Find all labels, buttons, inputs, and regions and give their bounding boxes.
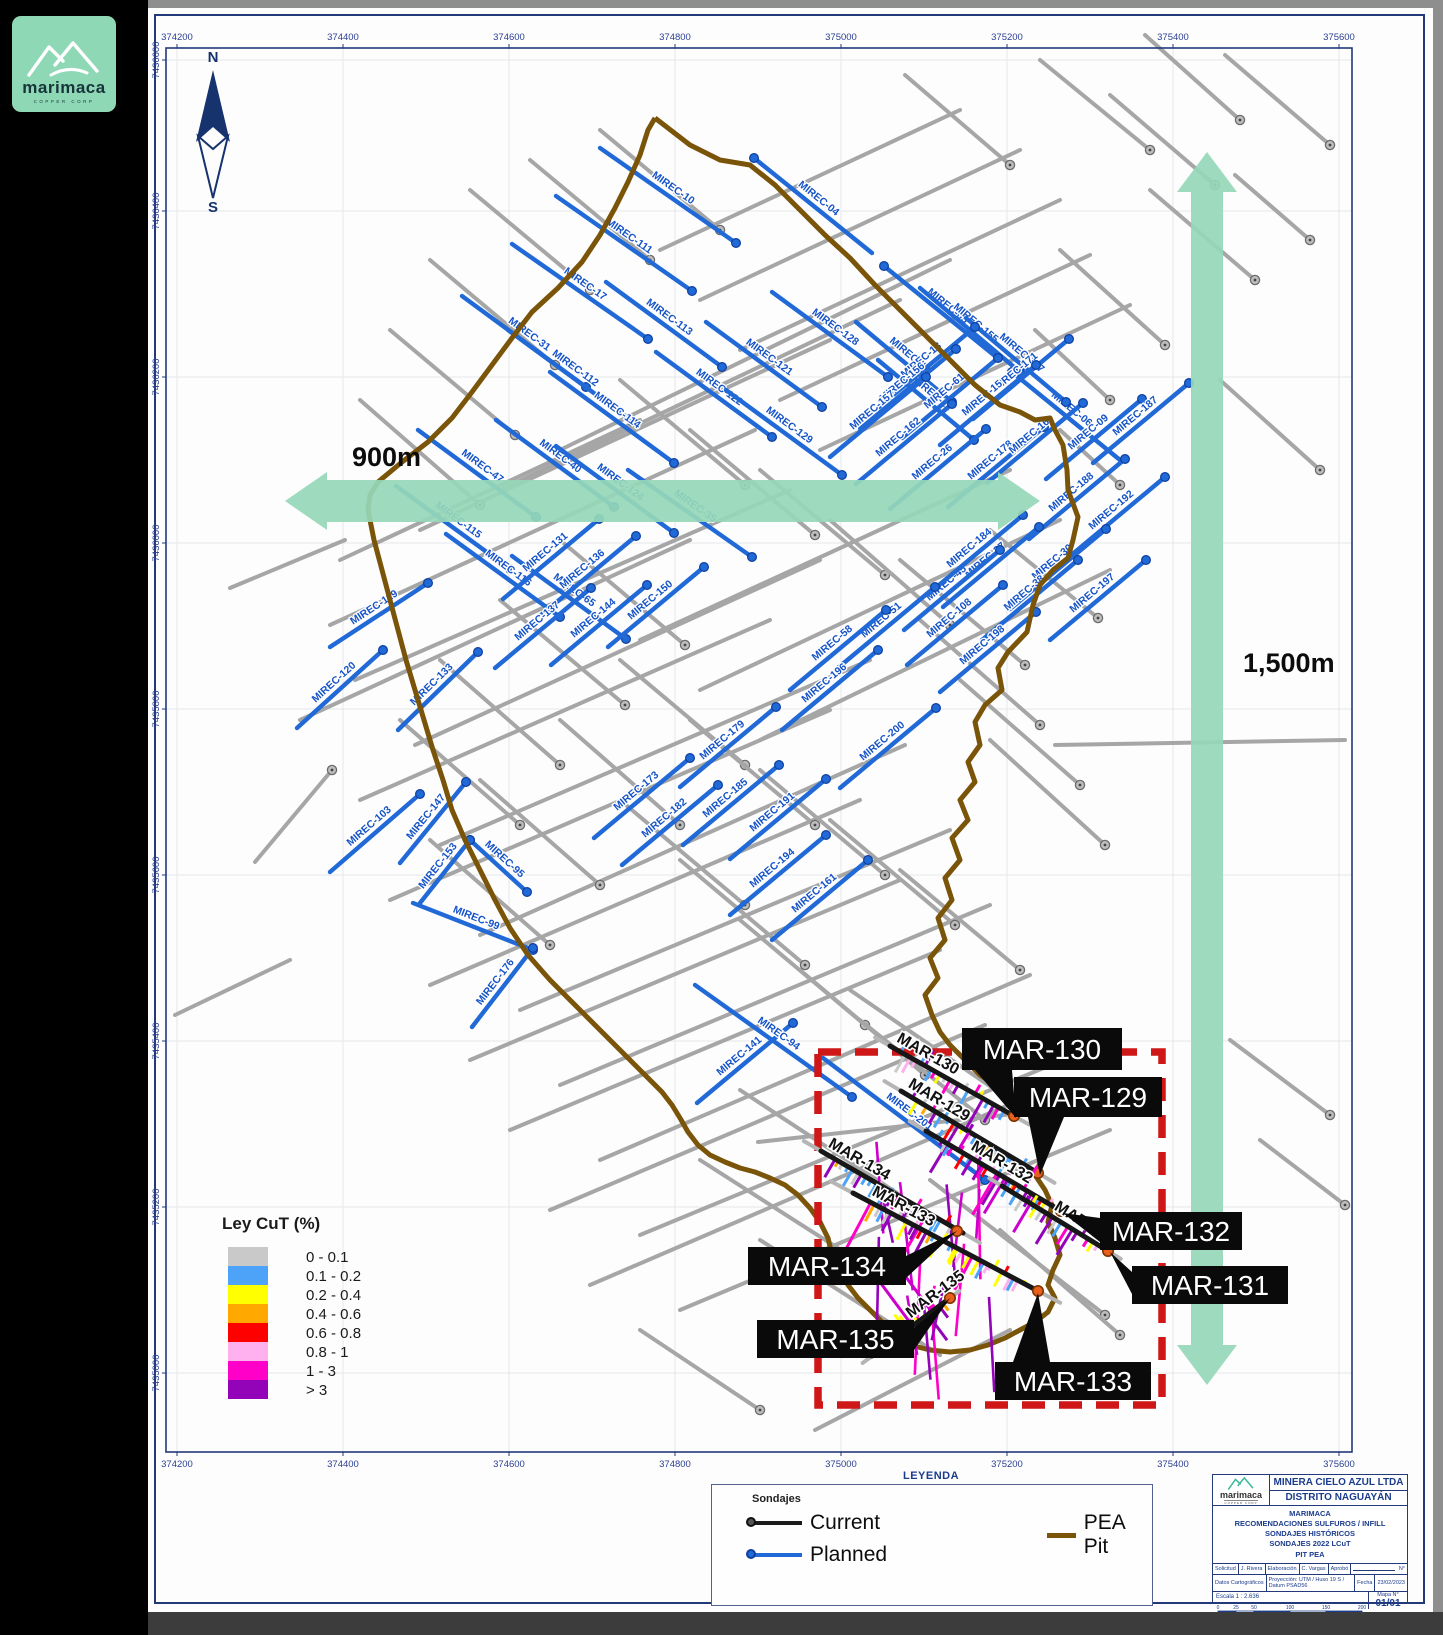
planned-collar-dot: [750, 154, 759, 163]
planned-collar-dot: [644, 335, 653, 344]
drill-line-planned: [330, 583, 428, 647]
grade-swatch: [228, 1285, 268, 1304]
planned-collar-dot: [775, 761, 784, 770]
y-axis-label: 7435800: [151, 691, 162, 728]
grade-label: > 3: [306, 1382, 327, 1399]
grade-label: 0.6 - 0.8: [306, 1325, 361, 1342]
planned-collar-dot: [1121, 455, 1130, 464]
mountain-icon: [1224, 1475, 1258, 1491]
y-axis-label: 7436000: [151, 525, 162, 562]
x-axis-label: 375600: [1323, 1459, 1355, 1470]
planned-collar-dot: [971, 323, 980, 332]
collar-marker: [1105, 395, 1114, 404]
x-axis-label: 374800: [659, 32, 691, 43]
planned-collar-dot: [1142, 556, 1151, 565]
drill-line-planned: [512, 244, 648, 339]
drill-line-current: [255, 770, 332, 862]
planned-collar-dot: [848, 1093, 857, 1102]
planned-collar-dot: [1161, 473, 1170, 482]
collar-marker: [1035, 720, 1044, 729]
callout-label: MAR-133: [1014, 1366, 1132, 1397]
y-axis-label: 7436600: [151, 42, 162, 79]
planned-collar-dot: [882, 606, 891, 615]
collar-marker: [1115, 1330, 1124, 1339]
planned-collar-dot: [462, 778, 471, 787]
planned-collar-dot: [874, 646, 883, 655]
drill-line-current: [440, 660, 560, 765]
page: marimaca COPPER CORP MIREC-10MIREC-111MI…: [0, 0, 1443, 1635]
planned-collar-dot: [822, 775, 831, 784]
legend-item-label: Current: [810, 1511, 880, 1535]
collar-marker: [1100, 840, 1109, 849]
planned-collar-dot: [686, 754, 695, 763]
solicitud-value: J. Rivera: [1239, 1564, 1266, 1574]
drill-line-current: [680, 860, 805, 965]
scale-arrow-vertical: [1177, 152, 1237, 1385]
planned-collar-dot: [931, 583, 940, 592]
drill-line-current: [1220, 380, 1320, 470]
collar-marker: [1325, 140, 1334, 149]
collar-marker: [1115, 480, 1124, 489]
legend-item-planned: Planned: [750, 1543, 887, 1567]
legend-group-label: Sondajes: [752, 1493, 801, 1505]
aprobo-label: Aprobó: [1329, 1564, 1352, 1574]
drill-line-current: [1230, 1040, 1330, 1115]
fecha-value: 23/02/2023: [1375, 1575, 1407, 1591]
planned-collar-dot: [880, 262, 889, 271]
x-axis-label: 374200: [161, 32, 193, 43]
scale-arrow-horizontal: [285, 472, 1040, 530]
callout-label: MAR-129: [1029, 1082, 1147, 1113]
scale-cell: Escala 1 : 2.636 02550100150200: [1213, 1592, 1369, 1609]
y-axis-label: 7436200: [151, 359, 162, 396]
drill-line-current: [480, 780, 600, 885]
x-axis-label: 375000: [825, 32, 857, 43]
x-axis-label: 374400: [327, 32, 359, 43]
planned-collar-dot: [523, 888, 532, 897]
collar-marker: [545, 940, 554, 949]
collar-marker: [1015, 965, 1024, 974]
x-axis-label: 374200: [161, 1459, 193, 1470]
collar-marker: [620, 700, 629, 709]
v-dimension-label: 1,500m: [1243, 648, 1335, 678]
planned-collar-dot: [932, 704, 941, 713]
grade-swatch: [228, 1247, 268, 1266]
planned-collar-dot: [994, 354, 1003, 363]
collar-marker: [880, 870, 889, 879]
planned-collar-dot: [1102, 525, 1111, 534]
callout-label: MAR-131: [1151, 1270, 1269, 1301]
north-arrow-solid: [196, 70, 230, 142]
grade-label: 0.2 - 0.4: [306, 1287, 361, 1304]
grade-tick: [825, 1159, 835, 1177]
collar-marker: [327, 765, 336, 774]
drill-line-current: [1225, 55, 1330, 145]
grade-label: 1 - 3: [306, 1363, 336, 1380]
legend-box: Sondajes Current Planned PEA Pit: [711, 1484, 1153, 1606]
planned-collar-dot: [416, 790, 425, 799]
map-title-line: RECOMENDACIONES SULFUROS / INFILL: [1213, 1519, 1407, 1529]
collar-marker: [810, 530, 819, 539]
title-block: marimaca COPPER CORP MINERA CIELO AZUL L…: [1212, 1474, 1408, 1603]
legend-title: LEYENDA: [711, 1470, 1151, 1482]
company-name: MINERA CIELO AZUL LTDA: [1270, 1475, 1407, 1491]
collar-marker: [1145, 145, 1154, 154]
collar-marker: [555, 760, 564, 769]
drill-line-current: [175, 960, 290, 1015]
num-label: N°: [1399, 1564, 1407, 1574]
legend-item-pea-pit: PEA Pit: [1047, 1511, 1152, 1559]
planned-collar-dot: [688, 287, 697, 296]
elaboracion-label: Elaboración: [1266, 1564, 1300, 1574]
x-axis-label: 375400: [1157, 1459, 1189, 1470]
planned-collar-dot: [864, 856, 873, 865]
grade-label: 0 - 0.1: [306, 1249, 349, 1266]
h-dimension-label: 900m: [352, 442, 421, 472]
planned-collar-dot: [818, 403, 827, 412]
map-title-line: PIT PEA: [1213, 1550, 1407, 1560]
callout-leader: [1013, 1293, 1050, 1362]
callout-label: MAR-132: [1112, 1216, 1230, 1247]
legend-item-label: PEA Pit: [1084, 1511, 1152, 1559]
planned-collar-dot: [718, 363, 727, 372]
planned-collar-dot: [474, 648, 483, 657]
grade-swatch: [228, 1361, 268, 1380]
collar-marker: [1340, 1200, 1349, 1209]
planned-collar-dot: [822, 831, 831, 840]
fecha-label: Fecha: [1355, 1575, 1375, 1591]
planned-collar-dot: [922, 373, 931, 382]
north-label: N: [208, 49, 219, 66]
collar-marker: [595, 880, 604, 889]
planned-collar-dot: [952, 345, 961, 354]
planned-collar-dot: [748, 553, 757, 562]
scale-bar-value: 100: [1286, 1605, 1295, 1611]
collar-marker: [515, 820, 524, 829]
planned-collar-dot: [732, 239, 741, 248]
planned-collar-dot: [1065, 335, 1074, 344]
scale-bar-value: 0: [1217, 1605, 1220, 1611]
collar-marker: [1305, 235, 1314, 244]
planned-collar-dot: [772, 703, 781, 712]
logo-wordmark: marimaca: [1220, 1491, 1262, 1500]
solicitud-label: Solicitud: [1213, 1564, 1239, 1574]
grade-label: 0.8 - 1: [306, 1344, 349, 1361]
mapa-value: 01/01: [1375, 1598, 1400, 1609]
x-axis-label: 374800: [659, 1459, 691, 1470]
planned-collar-dot: [999, 581, 1008, 590]
grade-label: 0.1 - 0.2: [306, 1268, 361, 1285]
y-axis-label: 7435600: [151, 857, 162, 894]
grade-swatch: [228, 1380, 268, 1399]
collar-marker: [1093, 613, 1102, 622]
callout-leader: [1028, 1117, 1064, 1175]
cartographic-row: Datos Cartográficos Proyección: UTM / Hu…: [1213, 1575, 1407, 1592]
page-border-right: [1433, 0, 1443, 1635]
x-axis-label: 375200: [991, 32, 1023, 43]
map-title-line: SONDAJES HISTÓRICOS: [1213, 1529, 1407, 1539]
collar-marker: [1325, 1110, 1334, 1119]
planned-collar-dot: [670, 459, 679, 468]
collar-marker: [950, 920, 959, 929]
collar-marker: [1235, 115, 1244, 124]
map-title-line: MARIMACA: [1213, 1509, 1407, 1519]
planned-collar-dot: [789, 1019, 798, 1028]
x-axis-label: 375200: [991, 1459, 1023, 1470]
y-axis-label: 7436400: [151, 193, 162, 230]
planned-collar-dot: [982, 425, 991, 434]
collar-marker: [680, 640, 689, 649]
collar-marker: [1315, 465, 1324, 474]
drill-line-planned: [754, 158, 872, 253]
datos-label: Datos Cartográficos: [1213, 1575, 1267, 1591]
approval-row: Solicitud J. Rivera Elaboración C. Varga…: [1213, 1564, 1407, 1575]
x-axis-label: 374600: [493, 32, 525, 43]
drill-line-planned: [398, 652, 478, 730]
collar-marker: [1075, 780, 1084, 789]
planned-collar-dot: [424, 579, 433, 588]
drill-line-current: [660, 110, 960, 250]
scale-bar-value: 50: [1251, 1605, 1257, 1611]
planned-collar-dot: [1062, 398, 1071, 407]
collar-marker: [810, 820, 819, 829]
planned-collar-dot: [768, 433, 777, 442]
drill-line-current: [900, 870, 1020, 970]
callout-label: MAR-135: [776, 1324, 894, 1355]
north-arrow: NS: [196, 49, 230, 216]
grade-swatch: [228, 1342, 268, 1361]
legend-item-current: Current: [750, 1511, 880, 1535]
grade-swatch: [228, 1304, 268, 1323]
pea-pit-swatch: [1047, 1533, 1076, 1538]
drill-line-planned: [840, 708, 936, 788]
escala-label: Escala 1 : 2.636: [1216, 1594, 1259, 1600]
planned-collar-dot: [714, 781, 723, 790]
scale-bar-value: 25: [1233, 1605, 1239, 1611]
drill-line-current: [640, 1330, 760, 1410]
drill-line-current: [700, 150, 1020, 300]
collar-marker: [1020, 660, 1029, 669]
planned-collar-dot: [884, 373, 893, 382]
drill-line-current: [230, 540, 345, 588]
x-axis-label: 375400: [1157, 32, 1189, 43]
x-axis-label: 375000: [825, 1459, 857, 1470]
collar-marker: [1160, 340, 1169, 349]
planned-collar-dot: [632, 532, 641, 541]
drill-line-planned: [472, 948, 533, 1027]
planned-collar-dot: [529, 944, 538, 953]
drill-line-planned: [606, 282, 722, 367]
collar-marker: [1250, 275, 1259, 284]
planned-collar-dot: [643, 581, 652, 590]
logo-subtext: COPPER CORP: [1224, 1500, 1257, 1505]
title-block-logo: marimaca COPPER CORP: [1213, 1475, 1270, 1505]
planned-collar-dot: [700, 563, 709, 572]
south-label: S: [208, 199, 218, 216]
legend-item-label: Planned: [810, 1543, 887, 1567]
planned-collar-dot: [948, 400, 957, 409]
drillhole-label: MIREC-103: [344, 804, 393, 849]
planned-collar-dot: [996, 546, 1005, 555]
south-arrow-outline: [198, 136, 228, 198]
planned-collar-dot: [379, 646, 388, 655]
y-axis-label: 7435200: [151, 1189, 162, 1226]
x-axis-label: 375600: [1323, 32, 1355, 43]
map-title-lines: MARIMACARECOMENDACIONES SULFUROS / INFIL…: [1213, 1506, 1407, 1564]
grade-swatch: [228, 1323, 268, 1342]
drill-line-current: [740, 200, 1060, 350]
collar-marker: [800, 960, 809, 969]
grade-legend-title: Ley CuT (%): [222, 1214, 320, 1233]
drill-line-current: [1235, 175, 1310, 240]
planned-collar-dot: [670, 529, 679, 538]
planned-collar-dot: [1079, 399, 1088, 408]
x-axis-label: 374600: [493, 1459, 525, 1470]
scale-bar-value: 200: [1358, 1605, 1366, 1611]
y-axis-label: 7435400: [151, 1023, 162, 1060]
elaboracion-value: C. Vargas: [1300, 1564, 1329, 1574]
drill-line-current: [1260, 1140, 1345, 1205]
planned-line-swatch: [750, 1553, 802, 1557]
num-line: [1353, 1567, 1394, 1571]
map-title-line: SONDAJES 2022 LCuT: [1213, 1539, 1407, 1549]
drillhole-map-canvas: MIREC-10MIREC-111MIREC-17MIREC-31MIREC-1…: [0, 0, 1443, 1635]
planned-collar-dot: [1074, 556, 1083, 565]
callout-label: MAR-130: [983, 1034, 1101, 1065]
drill-line-current: [1040, 60, 1150, 150]
drill-line-current: [905, 75, 1010, 165]
scale-bar-value: 150: [1322, 1605, 1331, 1611]
collar-marker: [755, 1405, 764, 1414]
collar-marker: [1005, 160, 1014, 169]
grade-legend: Ley CuT (%)0 - 0.10.1 - 0.20.2 - 0.40.4 …: [222, 1214, 361, 1399]
planned-collar-dot: [587, 584, 596, 593]
planned-collar-dot: [1032, 361, 1041, 370]
district-name: DISTRITO NAGUAYÁN: [1270, 1491, 1407, 1506]
planned-collar-dot: [1035, 523, 1044, 532]
grade-swatch: [228, 1266, 268, 1285]
grade-label: 0.4 - 0.6: [306, 1306, 361, 1323]
current-line-swatch: [750, 1521, 802, 1525]
y-axis-label: 7435000: [151, 1355, 162, 1392]
callout-label: MAR-134: [768, 1251, 886, 1282]
planned-collar-dot: [838, 471, 847, 480]
page-border-bottom: [148, 1612, 1443, 1635]
proyeccion-value: Proyección: UTM / Huso 19 S / Datum PSAD…: [1267, 1575, 1356, 1591]
mapa-cell: Mapa N° 01/01: [1369, 1592, 1407, 1609]
x-axis-label: 374400: [327, 1459, 359, 1470]
